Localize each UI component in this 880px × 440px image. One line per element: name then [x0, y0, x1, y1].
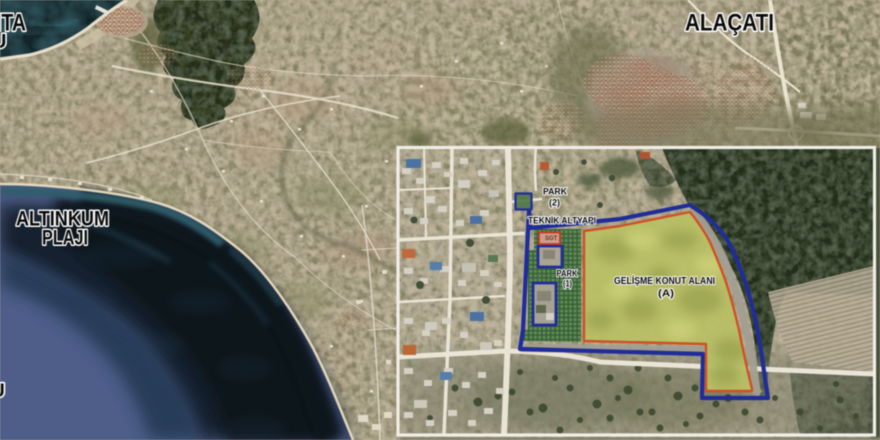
svg-text:PLAJI: PLAJI [42, 227, 88, 250]
svg-text:(1): (1) [563, 279, 572, 289]
svg-text:PARK: PARK [557, 269, 578, 279]
svg-text:GELİŞME KONUT ALANI: GELİŞME KONUT ALANI [614, 274, 715, 287]
svg-text:ALAÇATI: ALAÇATI [685, 10, 774, 37]
svg-text:(2): (2) [549, 198, 560, 209]
svg-text:SGT: SGT [545, 236, 558, 242]
svg-text:(A): (A) [658, 288, 674, 300]
svg-text:TEKNİK ALTYAPI: TEKNİK ALTYAPI [528, 216, 596, 227]
svg-text:PARK: PARK [543, 187, 567, 198]
svg-text:U: U [0, 381, 5, 402]
svg-text:U: U [0, 31, 6, 53]
